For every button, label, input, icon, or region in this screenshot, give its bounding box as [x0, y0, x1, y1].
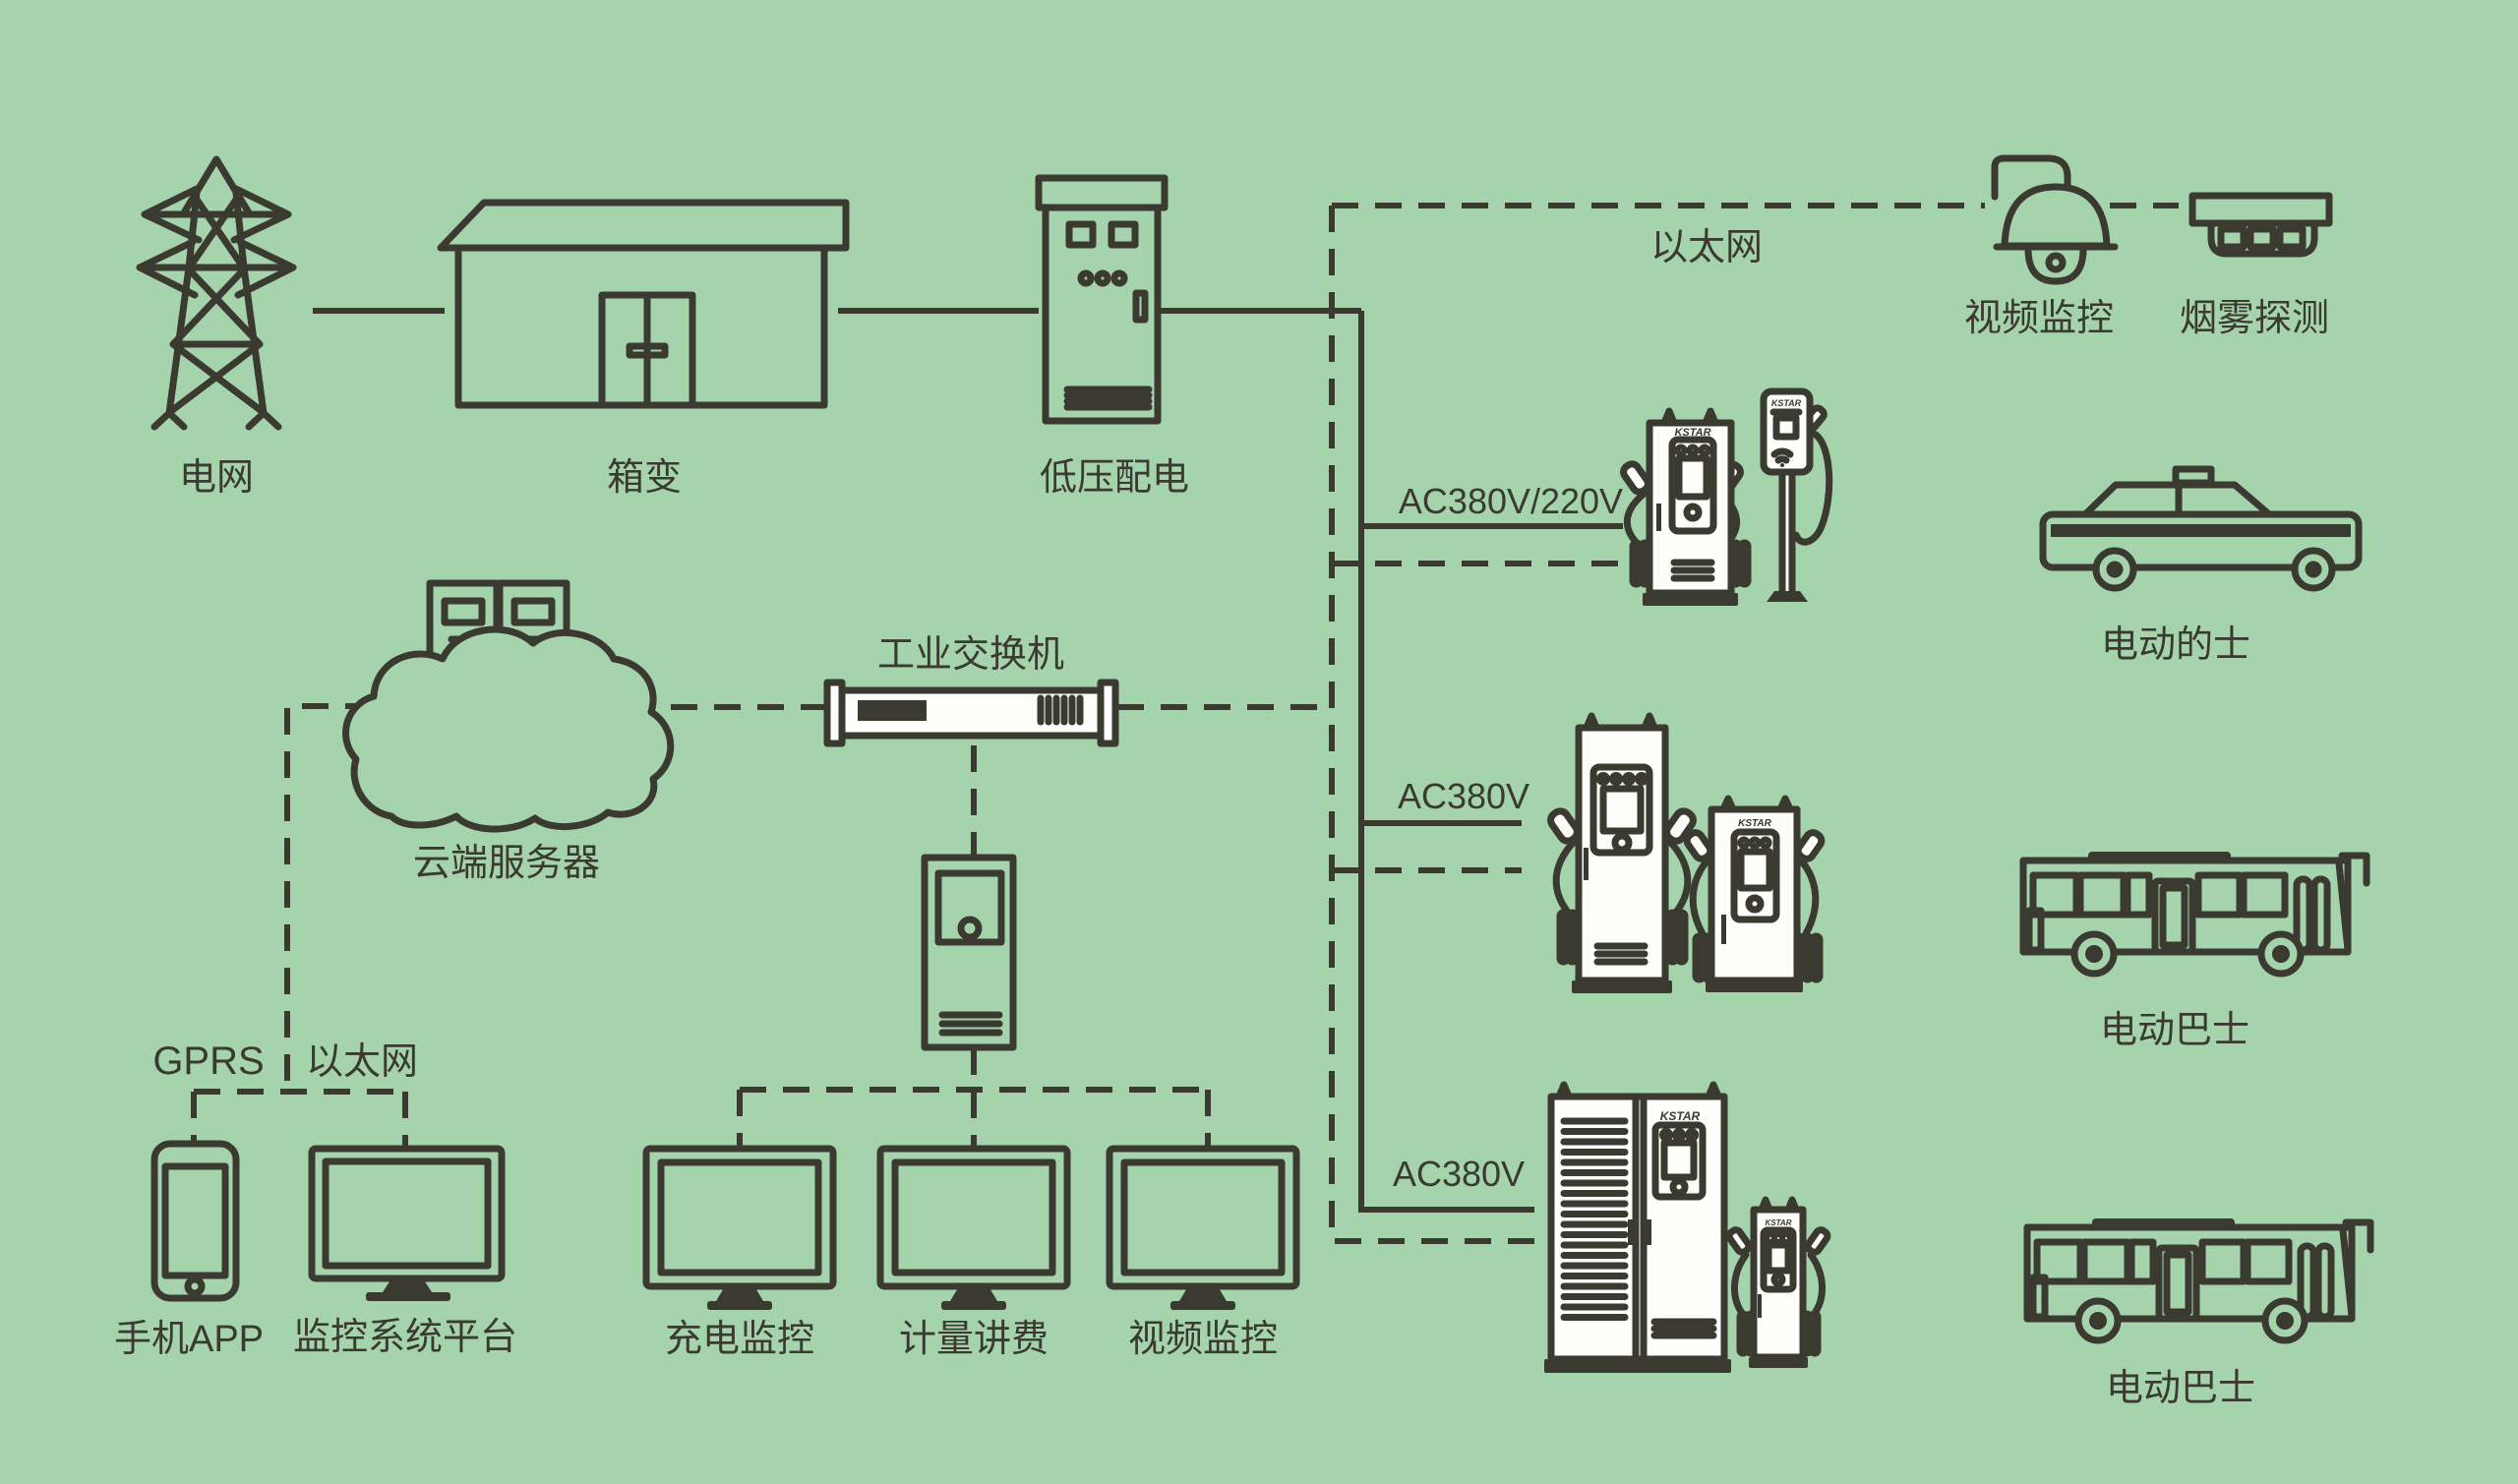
ac-wallbox-charger-icon: KSTAR	[1764, 391, 1829, 602]
charging-monitor-label: 充电监控	[665, 1319, 814, 1360]
voltage-label-taxi: AC380V/220V	[1399, 481, 1623, 521]
ev-charging-system-diagram: 电网 箱变 低压配电 以太网 视频监控 烟雾探测	[0, 0, 2518, 1484]
electric-bus1-icon	[2023, 852, 2367, 974]
metering-billing-label: 计量讲费	[899, 1319, 1049, 1360]
lv-distribution-label: 低压配电	[1040, 457, 1189, 499]
ethernet-lan-label: 以太网	[306, 1041, 418, 1083]
brand-label: KSTAR	[1766, 1218, 1792, 1227]
cloud-server-icon	[346, 583, 671, 829]
smoke-detection-label: 烟雾探测	[2180, 298, 2329, 339]
electric-bus2-label: 电动巴士	[2106, 1368, 2255, 1409]
mobile-app-label: 手机APP	[114, 1319, 264, 1360]
brand-label: KSTAR	[1738, 818, 1771, 829]
electric-bus1-label: 电动巴士	[2100, 1010, 2249, 1051]
dc-charger-bus1-small-icon: KSTAR	[1684, 799, 1824, 992]
video-monitor-label: 视频监控	[1128, 1319, 1278, 1360]
dc-charger-bus1-large-icon	[1547, 716, 1696, 993]
transmission-tower-icon	[140, 159, 293, 427]
monitoring-platform-icon	[312, 1149, 502, 1301]
cloud-server-label: 云端服务器	[413, 843, 600, 884]
diagram-canvas: 电网 箱变 低压配电 以太网 视频监控 烟雾探测	[0, 0, 2518, 1484]
video-surveillance-label: 视频监控	[1964, 298, 2114, 339]
electric-taxi-icon	[2043, 469, 2359, 588]
industrial-switch-label: 工业交换机	[877, 634, 1064, 676]
electric-bus2-icon	[2027, 1218, 2370, 1340]
transformer-label: 箱变	[607, 457, 682, 499]
charging-host-cabinet-icon	[925, 858, 1013, 1047]
dc-charger-taxi-icon: KSTAR	[1621, 411, 1748, 606]
grid-label: 电网	[179, 457, 254, 499]
lv-distribution-cabinet-icon	[1039, 178, 1165, 421]
industrial-switch-icon	[827, 683, 1115, 743]
monitoring-platform-label: 监控系统平台	[293, 1317, 517, 1358]
power-cabinet-bus2-icon: KSTAR	[1544, 1085, 1731, 1373]
voltage-label-bus1: AC380V	[1398, 776, 1529, 816]
brand-label: KSTAR	[1660, 1109, 1701, 1123]
video-camera-icon	[1995, 158, 2115, 281]
mobile-phone-icon	[154, 1144, 236, 1298]
dc-charger-bus2-small-icon: KSTAR	[1727, 1200, 1829, 1368]
smoke-detector-icon	[2192, 196, 2329, 254]
charging-monitor-icon	[646, 1149, 833, 1310]
electric-taxi-label: 电动的士	[2101, 624, 2250, 666]
ethernet-trunk-label: 以太网	[1650, 227, 1763, 268]
gprs-label: GPRS	[152, 1039, 264, 1083]
video-monitor-icon	[1109, 1149, 1296, 1310]
box-transformer-icon	[441, 203, 846, 405]
power-bus-vertical	[1361, 311, 1534, 1210]
voltage-label-bus2: AC380V	[1393, 1154, 1525, 1194]
metering-billing-icon	[880, 1149, 1067, 1310]
brand-label: KSTAR	[1771, 398, 1802, 408]
